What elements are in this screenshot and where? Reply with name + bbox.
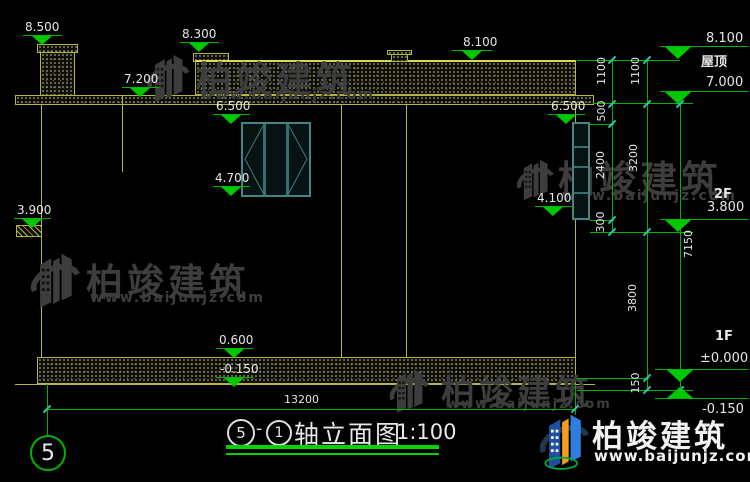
- dim-13200-label: 13200: [284, 393, 319, 406]
- dim-3200: 3200: [627, 130, 641, 186]
- brand-logo-icon: [382, 362, 436, 416]
- level-3800-label: 3.800: [707, 201, 744, 214]
- grid-axis-number: 5: [41, 441, 55, 466]
- dim-1100-inner: 1100: [595, 46, 609, 96]
- title-underline-thick: [226, 445, 439, 449]
- marker-parapet-left-label: 8.300: [182, 28, 216, 41]
- marker-window-mid-sill-triangle: [221, 187, 241, 196]
- watermark-site-text: www.baijunjz.com: [90, 290, 265, 306]
- marker-ground-left-label: -0.150: [220, 363, 259, 376]
- level-8100-label: 8.100: [706, 32, 743, 45]
- marker-plinth-label: 0.600: [219, 334, 253, 347]
- marker-window-right-sill-triangle: [543, 207, 563, 216]
- wall-left-edge: [41, 105, 42, 357]
- marker-window-right-sill-label: 4.100: [537, 192, 571, 205]
- marker-window-right-top-triangle: [556, 115, 576, 124]
- level-triangle-7000: [665, 92, 691, 104]
- marker-ground-left-triangle: [224, 378, 244, 387]
- marker-plinth-triangle: [224, 349, 244, 358]
- dim-1100-middle: 1100: [629, 46, 643, 96]
- elevation-drawing-canvas: 柏竣建筑 www.baijunjz.com 柏竣建筑 www.baijunjz.…: [0, 0, 750, 482]
- window-right-narrow: [572, 122, 590, 220]
- title-underline-thin: [226, 453, 439, 455]
- level-floor1-name: 1F: [715, 330, 733, 343]
- marker-eave-left-triangle: [130, 88, 150, 97]
- marker-window-mid-top-label: 6.500: [216, 100, 250, 113]
- roof-vent-body: [391, 54, 408, 62]
- marker-eave-left-label: 7.200: [124, 73, 158, 86]
- marker-roof-top-triangle: [462, 51, 482, 60]
- marker-window-right-top-label: 6.500: [551, 100, 585, 113]
- wall-line-b: [341, 105, 342, 357]
- chimney-body: [40, 52, 75, 96]
- title-dash: -: [256, 423, 262, 436]
- drawing-scale: 1:100: [396, 420, 457, 444]
- level-triangle-3800: [665, 220, 691, 232]
- title-axis-b: 1: [275, 425, 284, 441]
- marker-ledge-label: 3.900: [17, 204, 51, 217]
- dim-300: 300: [594, 204, 608, 240]
- marker-ledge-triangle: [22, 219, 42, 228]
- dim-3800: 3800: [626, 270, 640, 326]
- level-7000-label: 7.000: [706, 76, 743, 89]
- marker-chimney-top-label: 8.500: [25, 21, 59, 34]
- wall-line-a: [122, 96, 123, 172]
- dim-chain-inner: [612, 60, 613, 232]
- marker-chimney-top-triangle: [32, 36, 52, 45]
- title-axis-a-circle: 5: [227, 419, 255, 447]
- grid-axis-bubble: 5: [30, 435, 66, 471]
- level-triangle-0000: [667, 370, 693, 382]
- window-middle: [241, 122, 311, 197]
- dim-2400: 2400: [594, 137, 608, 193]
- marker-window-mid-sill-label: 4.700: [215, 172, 249, 185]
- dim-chain-middle: [647, 60, 648, 390]
- brand-logo-color-icon: [536, 404, 592, 474]
- level-line-ground: [655, 398, 748, 399]
- dim-chain-outer: [680, 104, 681, 390]
- level-roof-name: 屋顶: [701, 56, 727, 69]
- level-0000-label: ±0.000: [700, 352, 748, 365]
- dim-500: 500: [595, 91, 609, 131]
- level-triangle-ground: [667, 387, 693, 398]
- dim-150: 150: [629, 366, 643, 400]
- wall-line-c: [406, 105, 407, 357]
- title-axis-a: 5: [236, 424, 246, 442]
- marker-roof-top-label: 8.100: [463, 36, 497, 49]
- dim-line-13200: [47, 409, 575, 410]
- brand-logo-icon: [27, 243, 83, 313]
- marker-window-mid-top-triangle: [221, 115, 241, 124]
- title-axis-b-circle: 1: [266, 420, 292, 446]
- level-triangle-8100: [665, 47, 691, 59]
- brand-site-text: www.baijunjz.com: [594, 447, 750, 465]
- marker-parapet-left-triangle: [189, 43, 209, 52]
